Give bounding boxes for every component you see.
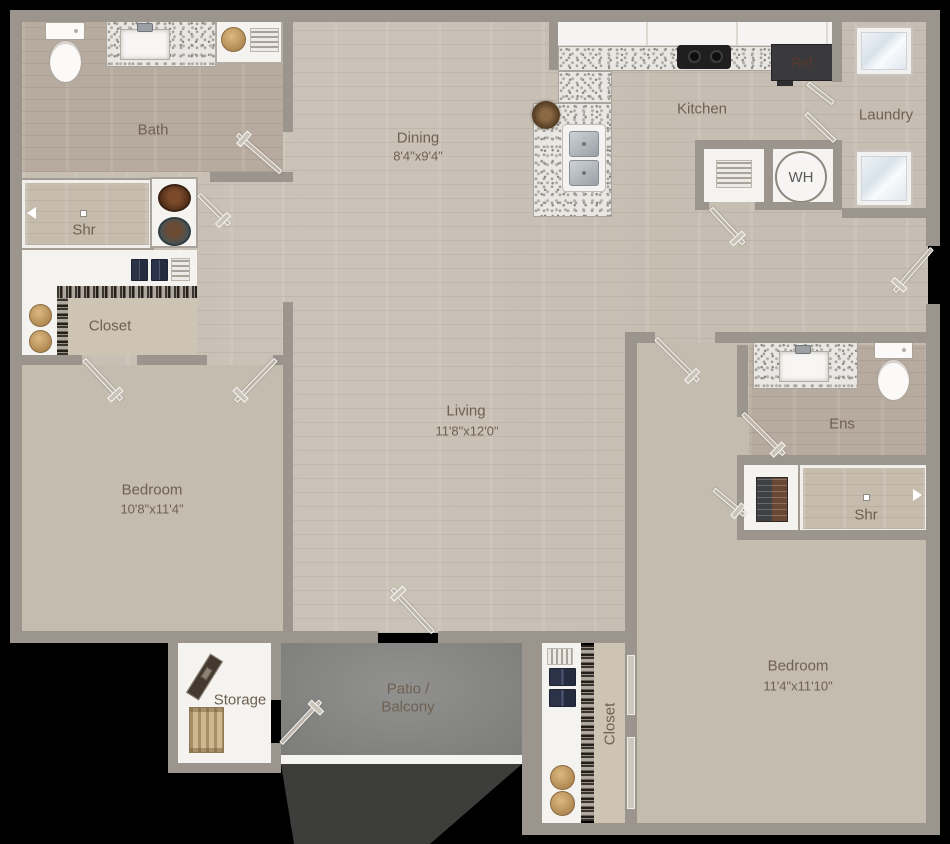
wall: [210, 172, 293, 182]
ensuite-sink: [779, 351, 829, 382]
wall: [438, 631, 633, 643]
hanging-clothes: [57, 286, 197, 298]
cooktop: [677, 45, 731, 69]
refrigerator: Ref: [771, 44, 833, 81]
wall: [737, 345, 748, 417]
folded-clothes: [151, 259, 168, 281]
bath-label: Bath: [138, 122, 169, 139]
wall: [10, 10, 940, 22]
wall: [168, 631, 178, 773]
folded-clothes: [549, 668, 576, 686]
wall: [842, 208, 926, 218]
towel-stack: [250, 28, 279, 52]
wall: [283, 20, 293, 132]
ensuite-label: Ens: [829, 416, 855, 433]
wall: [695, 140, 842, 149]
closet-left-label: Closet: [89, 318, 132, 335]
sliding-door-panel: [627, 655, 635, 715]
wall: [10, 355, 82, 365]
refrigerator-label: Ref: [792, 55, 812, 70]
washer-glass: [861, 32, 907, 70]
basket: [550, 765, 575, 790]
patio-label-line1: Patio /: [387, 681, 430, 698]
water-heater: WH: [775, 151, 827, 203]
basket: [29, 304, 52, 327]
wall: [737, 530, 928, 540]
refrigerator-handle: [777, 81, 793, 86]
closet-right-label: Closet: [602, 703, 619, 746]
storage-label: Storage: [214, 692, 267, 709]
washer: [855, 26, 913, 76]
shower-head-icon: [913, 489, 922, 501]
dryer: [855, 150, 913, 207]
wall: [715, 332, 928, 343]
wall: [137, 355, 207, 365]
folded-clothes: [549, 689, 576, 707]
wall: [522, 643, 542, 823]
plant-decor: [532, 101, 560, 129]
wall: [832, 20, 842, 82]
bedroom-left-dims: 10'8"x11'4": [120, 501, 183, 518]
wall: [737, 465, 744, 530]
wall: [283, 362, 293, 631]
dining-dims: 8'4"x9'4": [393, 148, 443, 165]
basket: [550, 791, 575, 816]
wall: [926, 10, 940, 246]
kitchen-label: Kitchen: [677, 101, 727, 118]
wall: [926, 343, 940, 835]
patio-shadow: [281, 764, 522, 844]
folded-towels: [756, 477, 788, 522]
towel-stack: [547, 648, 573, 665]
living-dims: 11'8"x12'0": [435, 423, 498, 440]
shower-drain-icon: [863, 494, 870, 501]
wall: [737, 455, 928, 465]
towel-stack: [171, 258, 190, 281]
hanging-clothes: [581, 645, 594, 821]
patio-rail: [281, 755, 522, 764]
wall: [271, 743, 281, 765]
wall: [926, 304, 940, 343]
ensuite-faucet: [795, 345, 811, 354]
bedroom-right-dims: 11'4"x11'10": [763, 678, 832, 695]
bath-faucet: [137, 23, 153, 32]
toilet-tank: [45, 22, 85, 40]
burner-icon: [710, 50, 723, 63]
kitchen-counter-corner: [558, 71, 612, 103]
decor-bowl: [158, 217, 191, 246]
wall: [695, 202, 709, 210]
wall: [283, 302, 293, 362]
dining-label: Dining: [397, 130, 440, 147]
floor-plan: Ref WH: [0, 0, 950, 844]
wall: [522, 823, 940, 835]
kitchen-sink-basin-bottom: [569, 160, 599, 186]
towel-stack: [716, 160, 752, 188]
shower-drain-icon: [80, 210, 87, 217]
wooden-crate: [189, 707, 224, 753]
decor-bowl: [158, 184, 191, 212]
burner-icon: [688, 50, 701, 63]
toilet-bowl: [877, 359, 910, 401]
toilet-tank: [874, 341, 913, 359]
bath-sink: [120, 29, 170, 60]
laundry-label: Laundry: [859, 107, 913, 124]
folded-clothes: [131, 259, 148, 281]
bedroom-left-label: Bedroom: [122, 482, 183, 499]
wall: [833, 149, 842, 210]
shower-right-label: Shr: [854, 507, 877, 524]
shower-head-icon: [27, 207, 36, 219]
wall: [10, 631, 378, 643]
shower-left-label: Shr: [72, 222, 95, 239]
patio-label-line2: Balcony: [381, 699, 434, 716]
dryer-glass: [861, 156, 907, 201]
hanging-clothes: [57, 298, 68, 355]
wall: [168, 763, 281, 773]
kitchen-upper-cabinets: [558, 20, 832, 46]
basket: [29, 330, 52, 353]
living-label: Living: [446, 403, 485, 420]
wall: [549, 20, 558, 70]
wall: [10, 10, 22, 643]
wall: [764, 149, 773, 210]
wall: [695, 149, 704, 210]
wall: [271, 643, 281, 700]
basket: [221, 27, 246, 52]
kitchen-sink-basin-top: [569, 131, 599, 157]
sliding-door-panel: [627, 737, 635, 809]
bedroom-right-label: Bedroom: [768, 658, 829, 675]
wall: [755, 202, 842, 210]
toilet-bowl: [49, 40, 82, 83]
water-heater-label: WH: [789, 169, 814, 186]
